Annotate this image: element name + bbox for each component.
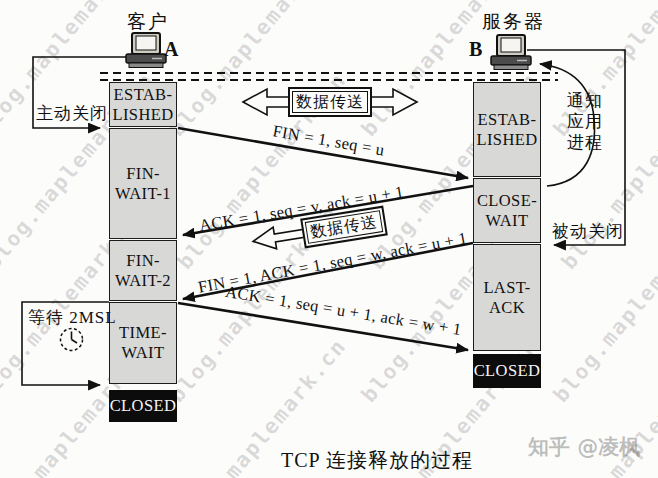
server-state-established: ESTAB- LISHED	[473, 82, 541, 177]
clock-icon	[58, 326, 85, 357]
client-letter: A	[164, 38, 178, 61]
tcp-release-diagram: blog.maplemark.cnblog.maplemark.cnblog.m…	[0, 0, 658, 478]
client-computer-icon	[122, 31, 170, 75]
passive-close-label: 被动关闭	[552, 220, 624, 243]
server-letter: B	[469, 38, 482, 61]
active-close-label: 主动关闭	[36, 102, 108, 125]
figure-caption: TCP 连接释放的过程	[281, 447, 473, 474]
message-label-fin: FIN = 1, seq = u	[271, 121, 386, 160]
client-state-fin-wait-2: FIN- WAIT-2	[109, 240, 177, 301]
client-state-established: ESTAB- LISHED	[109, 82, 177, 127]
client-state-fin-wait-1: FIN- WAIT-1	[109, 128, 177, 239]
server-state-last-ack: LAST- ACK	[473, 244, 541, 351]
data-transfer-right-arrow-icon	[370, 89, 417, 115]
server-state-closed: CLOSED	[473, 354, 541, 388]
data-transfer-left-arrow-icon	[243, 89, 290, 115]
server-computer-icon	[487, 33, 535, 77]
data-transfer-box-1: 数据传送	[288, 87, 372, 117]
notify-app-label: 通知 应用 进程	[567, 90, 611, 153]
message-label-ack2: ACK = 1, seq = u + 1, ack = w + 1	[224, 282, 463, 340]
data-transfer-2-left-arrow-icon	[251, 223, 305, 253]
credit-watermark: 知乎 @凌枫	[528, 433, 640, 461]
site-watermark: blog.maplemark.cn	[165, 0, 343, 141]
server-state-close-wait: CLOSE- WAIT	[473, 178, 541, 243]
client-state-time-wait: TIME- WAIT	[109, 302, 177, 384]
client-state-closed: CLOSED	[109, 390, 177, 422]
server-title: 服务器	[482, 9, 545, 35]
